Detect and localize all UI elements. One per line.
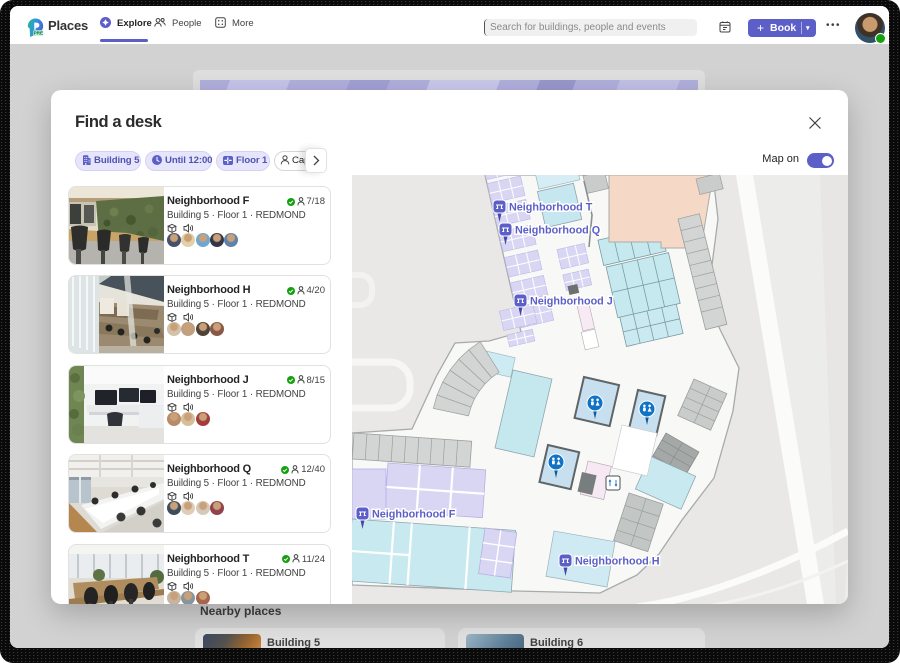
- svg-text:Neighborhood T: Neighborhood T: [509, 202, 593, 214]
- svg-text:Neighborhood H: Neighborhood H: [575, 556, 660, 568]
- svg-text:Neighborhood Q: Neighborhood Q: [515, 225, 600, 237]
- svg-text:Neighborhood F: Neighborhood F: [372, 509, 456, 521]
- svg-text:Neighborhood J: Neighborhood J: [530, 296, 613, 308]
- svg-text:PRE: PRE: [34, 31, 43, 36]
